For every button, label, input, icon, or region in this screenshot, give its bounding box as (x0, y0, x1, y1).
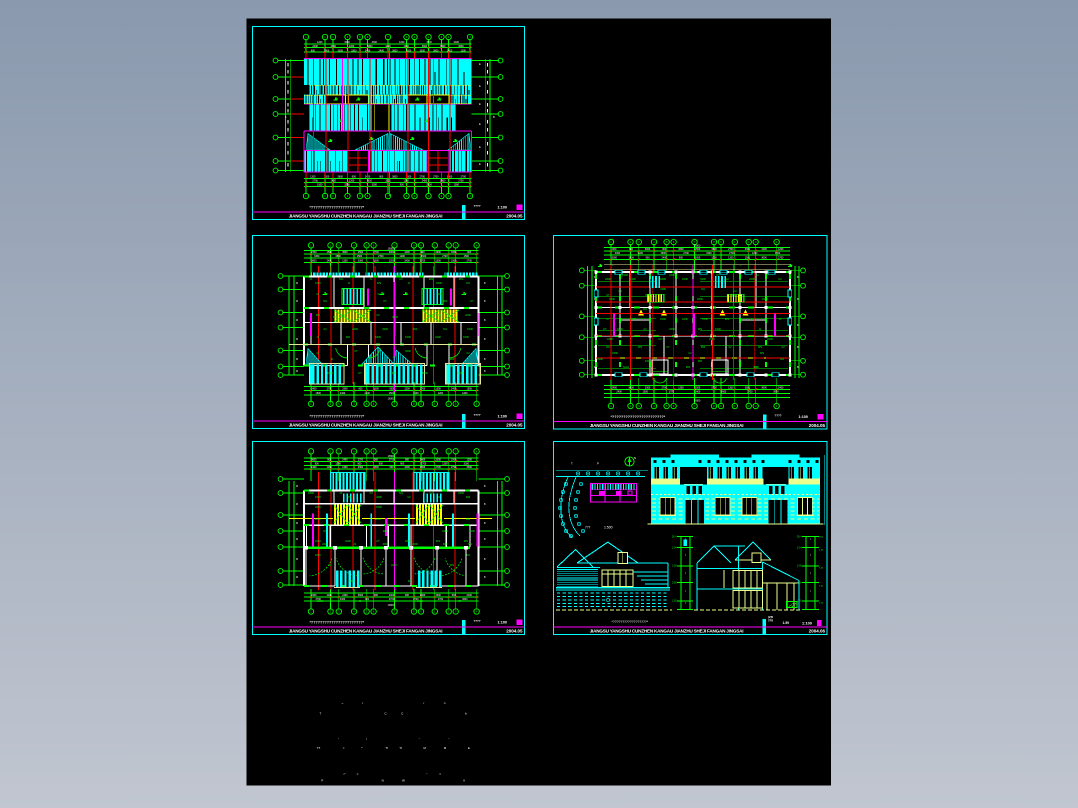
svg-text:2400: 2400 (327, 594, 333, 597)
svg-text:1500: 1500 (316, 392, 322, 395)
svg-text:r: r (423, 701, 424, 705)
svg-text:1500: 1500 (358, 251, 364, 254)
svg-text:M1: M1 (606, 345, 610, 349)
svg-text:1200: 1200 (467, 459, 473, 462)
svg-text:1500: 1500 (463, 335, 469, 339)
svg-text:B: B (493, 115, 495, 119)
svg-text:II: II (463, 779, 465, 783)
svg-text:1500: 1500 (435, 594, 441, 597)
svg-text:3300: 3300 (426, 184, 432, 187)
svg-text:M1: M1 (443, 327, 447, 331)
svg-text:2400: 2400 (331, 45, 337, 48)
svg-text:????: ???? (474, 204, 481, 208)
svg-text:WS: WS (377, 281, 381, 285)
svg-text:1500: 1500 (706, 252, 712, 255)
svg-text:3300: 3300 (358, 466, 364, 469)
svg-text:1200: 1200 (678, 387, 684, 390)
svg-text:3300: 3300 (358, 260, 364, 263)
svg-text:900: 900 (327, 459, 332, 462)
svg-text:2004.05: 2004.05 (506, 423, 523, 428)
svg-text:M: M (296, 486, 298, 488)
svg-text:3300: 3300 (338, 49, 344, 52)
svg-text:2400: 2400 (331, 180, 337, 183)
svg-text:2400: 2400 (435, 335, 441, 339)
svg-text:3300: 3300 (435, 459, 441, 462)
svg-text:3300: 3300 (447, 176, 453, 179)
svg-text:1500: 1500 (467, 327, 473, 331)
svg-text:2400: 2400 (391, 563, 397, 567)
svg-text:M: M (296, 371, 298, 373)
svg-text:C2: C2 (781, 345, 785, 349)
svg-text:E: E (468, 746, 470, 750)
svg-text:CT: CT (354, 349, 358, 353)
svg-text:900: 900 (365, 598, 370, 601)
svg-text:M1: M1 (399, 491, 403, 495)
svg-text:C2: C2 (466, 351, 470, 355)
svg-text:900: 900 (390, 466, 395, 469)
svg-text:=: = (439, 772, 441, 776)
svg-text:3300: 3300 (451, 459, 457, 462)
svg-text:1500: 1500 (630, 317, 636, 321)
svg-text:C2: C2 (399, 277, 403, 281)
svg-text:50.4: 50.4 (797, 536, 802, 539)
svg-text:P: P (597, 462, 599, 466)
svg-text:1:100: 1:100 (799, 415, 808, 419)
svg-text:M: M (296, 523, 298, 525)
svg-text:2700: 2700 (358, 459, 364, 462)
svg-text:1500: 1500 (628, 257, 634, 260)
svg-text:50.4: 50.4 (672, 536, 677, 539)
svg-text:3300: 3300 (392, 315, 398, 319)
svg-text:1200: 1200 (778, 248, 784, 251)
svg-text:3300: 3300 (344, 184, 350, 187)
svg-text:2700: 2700 (420, 176, 426, 179)
svg-text:TI: TI (385, 746, 388, 750)
svg-text:=: = (343, 746, 345, 750)
svg-text:2400: 2400 (312, 45, 318, 48)
svg-text:M: M (296, 283, 298, 285)
svg-text:3600: 3600 (421, 255, 427, 258)
svg-text:1200: 1200 (638, 252, 644, 255)
svg-text:C2: C2 (316, 351, 320, 355)
svg-text:900: 900 (374, 594, 379, 597)
svg-text:M1: M1 (323, 299, 327, 303)
svg-text:1200: 1200 (317, 41, 323, 44)
svg-text:1200: 1200 (461, 49, 467, 52)
svg-text:2700: 2700 (438, 598, 444, 601)
svg-text:3300: 3300 (612, 257, 618, 260)
svg-text:1500: 1500 (454, 184, 460, 187)
svg-text:3600: 3600 (721, 391, 727, 394)
svg-text:2700: 2700 (662, 387, 668, 390)
svg-text:2400: 2400 (420, 594, 426, 597)
svg-text:2400: 2400 (315, 539, 321, 543)
svg-text:3300: 3300 (645, 293, 651, 297)
svg-text:1200: 1200 (442, 463, 448, 466)
svg-text:1500: 1500 (762, 297, 768, 301)
svg-text:3300: 3300 (420, 49, 426, 52)
svg-text:3600: 3600 (433, 49, 439, 52)
svg-text:1800: 1800 (375, 517, 381, 521)
svg-text:N: N (634, 456, 636, 460)
svg-text:*???????????????????????*: *???????????????????????* (310, 621, 365, 625)
svg-text:C2: C2 (658, 337, 662, 341)
svg-text:7P2: 7P2 (768, 619, 774, 623)
svg-text:2700: 2700 (729, 252, 735, 255)
svg-text:1200: 1200 (349, 45, 355, 48)
svg-text:3.04: 3.04 (672, 547, 677, 550)
svg-text:900: 900 (443, 542, 448, 546)
svg-text:2700: 2700 (433, 176, 439, 179)
svg-text:1800: 1800 (375, 335, 381, 339)
svg-text:16500: 16500 (694, 245, 701, 248)
svg-text:900: 900 (405, 459, 410, 462)
svg-text:JIANGSU YANGSHU CUNZHEN KANGAU: JIANGSU YANGSHU CUNZHEN KANGAU JIANZHU S… (289, 214, 443, 219)
svg-text:3300: 3300 (372, 41, 378, 44)
svg-text:3300: 3300 (451, 260, 457, 263)
svg-text:3300: 3300 (467, 466, 473, 469)
svg-text:CT: CT (383, 299, 387, 303)
svg-text:JIANGSU YANGSHU CUNZHEN KANGAU: JIANGSU YANGSHU CUNZHEN KANGAU JIANZHU S… (590, 423, 744, 428)
svg-text:CT: CT (606, 317, 610, 321)
svg-text:2700: 2700 (389, 598, 395, 601)
svg-text:1500: 1500 (775, 252, 781, 255)
svg-text:1200: 1200 (311, 466, 317, 469)
svg-text:900: 900 (646, 257, 651, 260)
svg-text:2700: 2700 (312, 180, 318, 183)
svg-text:2400: 2400 (669, 273, 675, 277)
svg-text:3600: 3600 (435, 251, 441, 254)
svg-text:WS: WS (346, 335, 350, 339)
svg-text:2400: 2400 (607, 337, 613, 341)
svg-text:900: 900 (352, 176, 357, 179)
svg-text:1500: 1500 (645, 359, 651, 363)
svg-text:900: 900 (466, 495, 471, 499)
svg-text:C2: C2 (376, 313, 380, 317)
svg-text:1:100: 1:100 (498, 414, 507, 418)
svg-text:M: M (296, 559, 298, 561)
svg-text:2700: 2700 (442, 255, 448, 258)
svg-text:3300: 3300 (342, 388, 348, 391)
svg-text:900: 900 (392, 371, 397, 375)
svg-text:WS: WS (429, 277, 433, 281)
svg-text:900: 900 (612, 248, 617, 251)
svg-text:2700: 2700 (451, 466, 457, 469)
svg-text:2700: 2700 (389, 459, 395, 462)
svg-text:3600: 3600 (458, 45, 464, 48)
svg-text:1800: 1800 (315, 553, 321, 557)
svg-text:2400: 2400 (669, 327, 675, 331)
svg-text:900: 900 (421, 251, 426, 254)
svg-text:900: 900 (443, 299, 448, 303)
svg-text:900: 900 (390, 388, 395, 391)
svg-text:JIANGSU YANGSHU CUNZHEN KANGAU: JIANGSU YANGSHU CUNZHEN KANGAU JIANZHU S… (289, 629, 443, 634)
svg-text:1500: 1500 (317, 599, 323, 603)
svg-text:M: M (296, 577, 298, 579)
svg-text:C2: C2 (618, 289, 622, 293)
svg-text:1500: 1500 (327, 251, 333, 254)
svg-text:M: M (296, 301, 298, 303)
svg-text:=: = (357, 772, 359, 776)
svg-text:WS: WS (760, 351, 764, 355)
svg-text:2700: 2700 (458, 180, 464, 183)
svg-text:3600: 3600 (311, 260, 317, 263)
svg-text:1200: 1200 (413, 392, 419, 395)
svg-text:WS: WS (725, 317, 729, 321)
svg-text:1200: 1200 (399, 41, 405, 44)
svg-text:1200: 1200 (310, 176, 316, 179)
svg-text:2400: 2400 (340, 392, 346, 395)
svg-text:3600: 3600 (745, 387, 751, 390)
svg-text:2400: 2400 (327, 260, 333, 263)
svg-text:1200: 1200 (327, 466, 333, 469)
svg-text:2700: 2700 (747, 391, 753, 394)
svg-text:W: W (402, 779, 405, 783)
svg-text:1800: 1800 (682, 317, 688, 321)
svg-text:2400: 2400 (365, 49, 371, 52)
svg-text:2400: 2400 (420, 459, 426, 462)
svg-text:1500: 1500 (695, 248, 701, 251)
svg-text:*??????????????????*: *??????????????????* (612, 620, 649, 624)
svg-text:WS: WS (638, 345, 642, 349)
svg-text:????: ???? (775, 414, 782, 418)
svg-text:16500: 16500 (388, 455, 395, 458)
svg-text:2700: 2700 (373, 251, 379, 254)
svg-text:CT: CT (376, 539, 380, 543)
svg-text:16500: 16500 (388, 248, 395, 251)
svg-text:C2: C2 (733, 289, 737, 293)
svg-text:1200: 1200 (438, 392, 444, 395)
svg-text:2400: 2400 (767, 337, 773, 341)
svg-text:WS: WS (698, 327, 702, 331)
svg-text:3300: 3300 (469, 529, 475, 533)
svg-text:T: T (571, 462, 573, 466)
svg-text:M1: M1 (468, 542, 472, 546)
svg-text:2700: 2700 (711, 387, 717, 390)
svg-text:2400: 2400 (660, 287, 666, 291)
svg-text:1800: 1800 (660, 277, 666, 281)
svg-text:900: 900 (467, 251, 472, 254)
svg-text:900: 900 (374, 459, 379, 462)
svg-text:3300: 3300 (340, 598, 346, 601)
svg-text:⌐: ⌐ (342, 701, 344, 705)
svg-text:1500: 1500 (702, 317, 708, 321)
svg-text:*???????????????????????*: *???????????????????????* (310, 206, 365, 210)
svg-text:900: 900 (679, 257, 684, 260)
svg-text:1500: 1500 (622, 273, 628, 277)
svg-text:1200: 1200 (462, 392, 468, 395)
svg-text:2400: 2400 (616, 391, 622, 394)
svg-text:900: 900 (383, 542, 388, 546)
svg-text:900: 900 (311, 49, 316, 52)
svg-text:P: P (321, 779, 323, 783)
svg-text:3300: 3300 (440, 45, 446, 48)
svg-text:1500: 1500 (357, 255, 363, 258)
svg-text:2400: 2400 (662, 257, 668, 260)
svg-text:900: 900 (629, 248, 634, 251)
svg-text:CT: CT (323, 529, 327, 533)
svg-text:3600: 3600 (661, 252, 667, 255)
svg-text:C2: C2 (728, 345, 732, 349)
svg-text:3.00: 3.00 (672, 565, 677, 568)
svg-text:1800: 1800 (327, 371, 333, 375)
svg-text:2400: 2400 (379, 49, 385, 52)
svg-text:3.00: 3.00 (797, 565, 802, 568)
svg-text:900: 900 (450, 357, 455, 361)
svg-text:2.90: 2.90 (672, 582, 677, 585)
svg-text:WS: WS (450, 563, 454, 567)
svg-text:1800: 1800 (405, 539, 411, 543)
svg-text:3.04: 3.04 (797, 547, 802, 550)
svg-text:900: 900 (379, 176, 384, 179)
svg-text:CT: CT (754, 365, 758, 369)
svg-text:1500: 1500 (709, 337, 715, 341)
svg-text:1200: 1200 (400, 255, 406, 258)
svg-text:3300: 3300 (695, 257, 701, 260)
svg-text:ˇ: ˇ (419, 738, 420, 742)
svg-text:3600: 3600 (358, 594, 364, 597)
svg-text:WS: WS (316, 313, 320, 317)
svg-text:ˇ: ˇ (338, 738, 339, 742)
svg-text:M1: M1 (701, 287, 705, 291)
svg-text:WS: WS (408, 579, 412, 583)
svg-text:2700: 2700 (435, 466, 441, 469)
svg-text:2400: 2400 (352, 327, 358, 331)
svg-text:3300: 3300 (382, 327, 388, 331)
svg-text:7?7: 7?7 (585, 526, 591, 530)
svg-text:1800: 1800 (697, 297, 703, 301)
svg-text:E: E (479, 62, 481, 66)
svg-text:2400: 2400 (404, 260, 410, 263)
svg-text:2400: 2400 (422, 180, 428, 183)
svg-text:1800: 1800 (436, 281, 442, 285)
svg-text:2400: 2400 (440, 180, 446, 183)
svg-text:M1: M1 (780, 357, 784, 361)
svg-text:C2: C2 (407, 495, 411, 499)
svg-text:2004.05: 2004.05 (506, 214, 523, 219)
svg-text:3600: 3600 (711, 248, 717, 251)
svg-text:3600: 3600 (392, 176, 398, 179)
svg-text:3300: 3300 (373, 466, 379, 469)
svg-text:WS: WS (643, 307, 647, 311)
svg-text:1500: 1500 (643, 391, 649, 394)
svg-text:2700: 2700 (669, 391, 675, 394)
svg-text:2700: 2700 (778, 257, 784, 260)
svg-text:2400: 2400 (315, 505, 321, 509)
svg-text:CT: CT (606, 293, 610, 297)
svg-text:CT: CT (458, 599, 462, 603)
svg-text:2400: 2400 (778, 387, 784, 390)
svg-text:2700: 2700 (683, 252, 689, 255)
svg-text:CT: CT (470, 299, 474, 303)
svg-text:1500: 1500 (389, 392, 395, 395)
svg-text:M: M (296, 359, 298, 361)
svg-text:1800: 1800 (308, 491, 314, 495)
svg-text:1800: 1800 (315, 517, 321, 521)
svg-text:2400: 2400 (467, 594, 473, 597)
svg-text:E: E (479, 102, 481, 106)
svg-text:WS: WS (383, 529, 387, 533)
svg-text:CT: CT (358, 371, 362, 375)
svg-text:2400: 2400 (442, 529, 448, 533)
svg-text:C2: C2 (453, 315, 457, 319)
svg-text:WS: WS (698, 359, 702, 363)
svg-text:3300: 3300 (373, 260, 379, 263)
svg-text:2400: 2400 (342, 459, 348, 462)
svg-text:3300: 3300 (630, 277, 636, 281)
svg-text:2700: 2700 (311, 251, 317, 254)
svg-text:WS: WS (464, 539, 468, 543)
svg-text:900: 900 (466, 517, 471, 521)
svg-text:1500: 1500 (315, 281, 321, 285)
svg-text:2700: 2700 (467, 260, 473, 263)
svg-text:2400: 2400 (695, 391, 701, 394)
svg-text:1500: 1500 (385, 180, 391, 183)
svg-text:900: 900 (358, 388, 363, 391)
svg-text:C2: C2 (369, 491, 373, 495)
svg-text:1200: 1200 (342, 260, 348, 263)
svg-text:TI: TI (399, 746, 402, 750)
svg-text:1500: 1500 (435, 260, 441, 263)
svg-text:1500: 1500 (405, 335, 411, 339)
svg-text:2004.05: 2004.05 (506, 629, 523, 634)
svg-text:1200: 1200 (385, 45, 391, 48)
svg-text:2400: 2400 (447, 49, 453, 52)
svg-text:M1: M1 (466, 281, 470, 285)
svg-text:2700: 2700 (728, 248, 734, 251)
svg-text:1200: 1200 (404, 466, 410, 469)
svg-text:900: 900 (368, 180, 373, 183)
svg-text:CT: CT (316, 292, 320, 296)
svg-text:1500: 1500 (335, 463, 341, 466)
svg-text:E: E (479, 145, 481, 149)
svg-text:????: ???? (474, 413, 481, 417)
svg-text:CT: CT (666, 345, 670, 349)
svg-text:CT: CT (603, 327, 607, 331)
svg-text:1200: 1200 (728, 387, 734, 390)
svg-text:2400: 2400 (412, 542, 418, 546)
svg-text:1500: 1500 (317, 184, 323, 187)
svg-text:900: 900 (405, 594, 410, 597)
svg-text:1500: 1500 (695, 387, 701, 390)
svg-text:2400: 2400 (458, 491, 464, 495)
svg-text:3300: 3300 (405, 349, 411, 353)
svg-text:3600: 3600 (422, 45, 428, 48)
svg-text:1500: 1500 (426, 41, 432, 44)
svg-text:1800: 1800 (617, 327, 623, 331)
svg-text:1500: 1500 (376, 505, 382, 509)
svg-text:2400: 2400 (454, 41, 460, 44)
svg-text:1500: 1500 (467, 388, 473, 391)
svg-text:C2: C2 (429, 491, 433, 495)
svg-text:C2: C2 (778, 277, 782, 281)
svg-text:1500: 1500 (422, 371, 428, 375)
svg-text:CT: CT (716, 273, 720, 277)
svg-text:1800: 1800 (612, 351, 618, 355)
svg-text:1500: 1500 (435, 388, 441, 391)
svg-text:1800: 1800 (457, 371, 463, 375)
svg-text:3600: 3600 (406, 49, 412, 52)
svg-text:C2: C2 (688, 351, 692, 355)
svg-text:3600: 3600 (311, 459, 317, 462)
svg-text:3600: 3600 (773, 391, 779, 394)
svg-text:3300: 3300 (700, 277, 706, 281)
svg-text:3600: 3600 (462, 598, 468, 601)
svg-text:1.50: 1.50 (797, 600, 802, 603)
svg-text:M: M (296, 504, 298, 506)
svg-text:1800: 1800 (609, 297, 615, 301)
svg-text:3300: 3300 (615, 252, 621, 255)
